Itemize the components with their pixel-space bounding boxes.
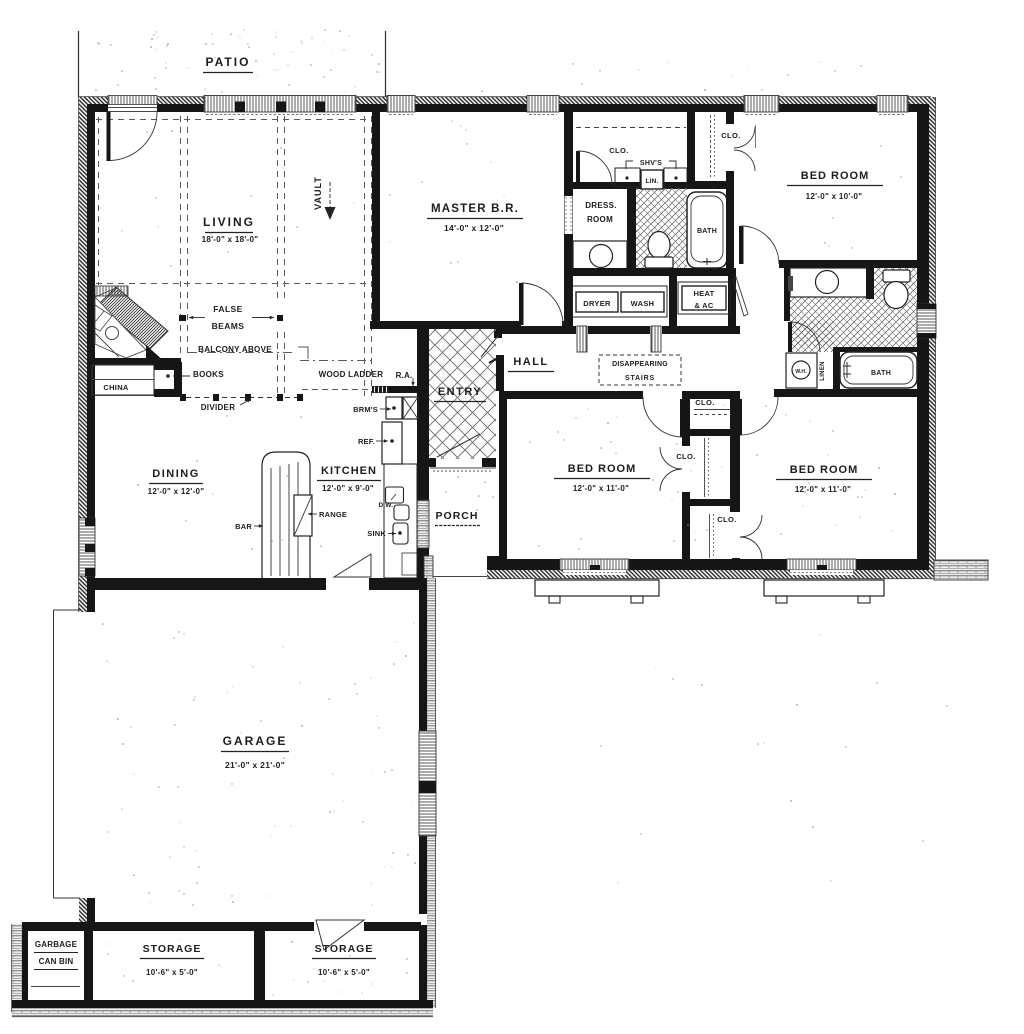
svg-text:CLO.: CLO. — [609, 146, 629, 155]
svg-text:DIVIDER: DIVIDER — [201, 403, 236, 412]
svg-text:21'-0" x 21'-0": 21'-0" x 21'-0" — [225, 760, 285, 770]
svg-text:PORCH: PORCH — [436, 510, 479, 522]
svg-text:MASTER B.R.: MASTER B.R. — [431, 203, 519, 215]
svg-text:DINING: DINING — [152, 468, 200, 480]
svg-text:DRYER: DRYER — [583, 299, 611, 308]
svg-text:CAN BIN: CAN BIN — [39, 957, 74, 966]
svg-text:STAIRS: STAIRS — [625, 375, 655, 382]
svg-text:BED ROOM: BED ROOM — [568, 463, 637, 475]
svg-text:VAULT: VAULT — [313, 176, 323, 210]
svg-text:BATH: BATH — [871, 370, 891, 377]
svg-text:LIN.: LIN. — [645, 178, 658, 185]
svg-text:SINK: SINK — [367, 529, 386, 538]
svg-text:ROOM: ROOM — [587, 215, 613, 224]
svg-text:PATIO: PATIO — [206, 55, 251, 69]
svg-text:BALCONY ABOVE: BALCONY ABOVE — [198, 345, 272, 354]
svg-text:CLO.: CLO. — [717, 515, 737, 524]
svg-text:10'-6" x 5'-0": 10'-6" x 5'-0" — [146, 968, 198, 977]
svg-text:SHV'S: SHV'S — [640, 160, 662, 167]
svg-text:CLO.: CLO. — [695, 398, 715, 407]
svg-text:BED ROOM: BED ROOM — [801, 170, 870, 182]
svg-text:LINEN: LINEN — [820, 361, 826, 381]
svg-text:14'-0" x 12'-0": 14'-0" x 12'-0" — [444, 223, 504, 233]
svg-text:HEAT: HEAT — [693, 289, 714, 298]
svg-text:WASH: WASH — [631, 299, 655, 308]
svg-text:BEAMS: BEAMS — [212, 321, 245, 331]
svg-text:CLO.: CLO. — [676, 452, 696, 461]
svg-text:DISAPPEARING: DISAPPEARING — [612, 361, 668, 368]
svg-text:BRM'S: BRM'S — [353, 405, 378, 414]
svg-text:FALSE: FALSE — [213, 304, 242, 314]
svg-text:R.A.: R.A. — [396, 371, 413, 380]
svg-text:STORAGE: STORAGE — [143, 943, 202, 955]
svg-text:18'-0" x 18'-0": 18'-0" x 18'-0" — [202, 235, 259, 244]
svg-text:BED ROOM: BED ROOM — [790, 464, 859, 476]
svg-text:LIVING: LIVING — [203, 215, 255, 229]
svg-text:D.W.: D.W. — [379, 502, 394, 509]
svg-text:CHINA: CHINA — [103, 383, 129, 392]
svg-text:HALL: HALL — [513, 356, 548, 368]
svg-text:12'-0" x 10'-0": 12'-0" x 10'-0" — [806, 192, 863, 201]
svg-text:ENTRY: ENTRY — [438, 386, 482, 398]
svg-text:WOOD LADDER: WOOD LADDER — [319, 370, 384, 379]
svg-text:STORAGE: STORAGE — [315, 943, 374, 955]
svg-text:CLO.: CLO. — [721, 131, 741, 140]
svg-text:GARAGE: GARAGE — [223, 734, 288, 748]
svg-text:REF.: REF. — [358, 437, 375, 446]
svg-text:10'-6" x 5'-0": 10'-6" x 5'-0" — [318, 968, 370, 977]
svg-text:12'-0" x 11'-0": 12'-0" x 11'-0" — [795, 485, 851, 494]
svg-text:12'-0" x 9'-0": 12'-0" x 9'-0" — [322, 484, 374, 493]
svg-text:BOOKS: BOOKS — [193, 370, 224, 379]
svg-text:& AC: & AC — [694, 301, 714, 310]
svg-text:W.H.: W.H. — [795, 369, 807, 375]
svg-text:12'-0" x 11'-0": 12'-0" x 11'-0" — [573, 484, 629, 493]
svg-text:GARBAGE: GARBAGE — [35, 940, 78, 949]
svg-text:RANGE: RANGE — [319, 510, 347, 519]
svg-text:KITCHEN: KITCHEN — [321, 465, 377, 477]
svg-text:BATH: BATH — [697, 228, 717, 235]
svg-text:12'-0" x 12'-0": 12'-0" x 12'-0" — [148, 487, 205, 496]
svg-text:DRESS.: DRESS. — [585, 201, 617, 210]
svg-text:BAR: BAR — [235, 522, 252, 531]
